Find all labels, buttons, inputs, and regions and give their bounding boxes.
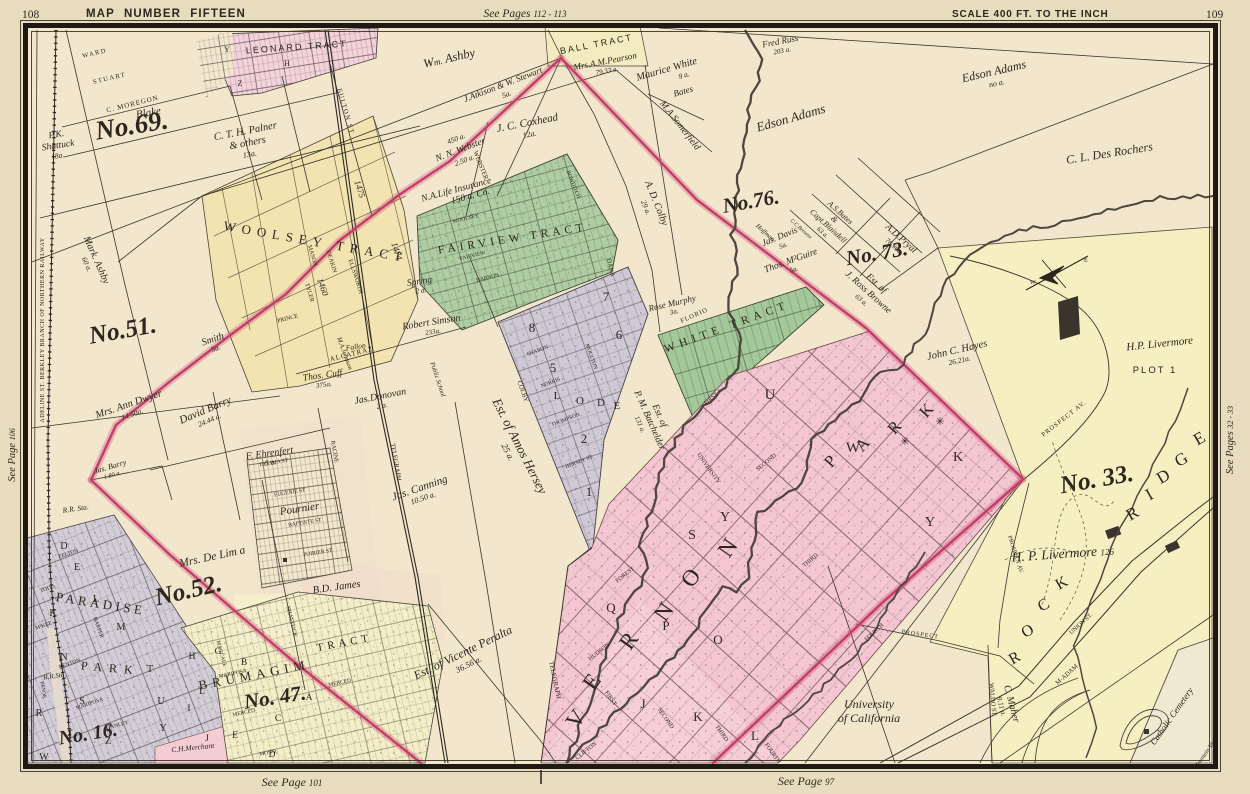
svg-text:R: R — [36, 708, 43, 719]
svg-text:U: U — [157, 696, 165, 707]
svg-text:L: L — [554, 390, 561, 402]
svg-text:Q: Q — [606, 600, 616, 615]
svg-text:1: 1 — [586, 484, 593, 499]
svg-text:E: E — [614, 400, 621, 412]
svg-text:MAP NUMBER FIFTEEN: MAP NUMBER FIFTEEN — [86, 8, 246, 20]
svg-text:6: 6 — [616, 327, 623, 342]
svg-text:E: E — [232, 731, 238, 741]
svg-text:See Pages 112 - 113: See Pages 112 - 113 — [484, 8, 567, 20]
svg-text:B: B — [241, 658, 247, 668]
svg-text:P: P — [662, 618, 669, 633]
svg-text:ADELINE ST. BERKLEY BRANCH: ADELINE ST. BERKLEY BRANCH OF NORTHERN R… — [40, 237, 46, 422]
svg-text:W: W — [1030, 280, 1036, 286]
svg-text:2: 2 — [581, 431, 588, 446]
svg-text:E: E — [74, 562, 80, 573]
svg-text:J: J — [640, 696, 645, 711]
svg-text:7: 7 — [603, 289, 610, 304]
svg-text:Y: Y — [159, 723, 166, 734]
svg-text:Z: Z — [238, 79, 243, 88]
svg-text:Y: Y — [720, 510, 730, 525]
svg-text:8: 8 — [529, 320, 536, 335]
svg-text:109: 109 — [1206, 9, 1224, 21]
svg-text:K: K — [693, 709, 703, 724]
svg-text:W: W — [39, 752, 49, 763]
svg-text:L: L — [93, 594, 99, 605]
svg-text:H: H — [284, 59, 290, 68]
svg-text:5: 5 — [550, 360, 557, 375]
svg-text:S: S — [688, 528, 696, 543]
svg-text:K: K — [953, 450, 963, 465]
svg-text:SCALE 400 FT. TO THE INCH: SCALE 400 FT. TO THE INCH — [952, 9, 1109, 20]
svg-text:L: L — [751, 728, 759, 743]
svg-text:Y: Y — [925, 515, 935, 530]
svg-text:✳: ✳ — [900, 436, 909, 448]
svg-text:Y: Y — [224, 45, 230, 54]
svg-text:T: T — [147, 664, 153, 675]
svg-text:✳: ✳ — [935, 416, 944, 428]
svg-text:See Page 101: See Page 101 — [262, 775, 323, 789]
svg-text:See Pages 32 - 33: See Pages 32 - 33 — [1225, 406, 1236, 474]
svg-text:I: I — [187, 704, 190, 714]
svg-text:M: M — [117, 622, 126, 633]
svg-text:D: D — [60, 541, 67, 552]
svg-text:See Page 97: See Page 97 — [778, 774, 835, 788]
svg-text:L: L — [199, 687, 205, 697]
svg-text:O: O — [713, 632, 722, 647]
svg-text:108: 108 — [22, 9, 40, 21]
svg-text:W: W — [846, 440, 861, 456]
svg-text:University: University — [844, 697, 895, 711]
svg-text:H: H — [189, 652, 196, 662]
svg-text:K: K — [49, 608, 57, 619]
svg-text:See Page 106: See Page 106 — [7, 428, 18, 481]
svg-text:U: U — [765, 387, 776, 403]
svg-text:2 a.: 2 a. — [415, 285, 428, 296]
svg-text:O: O — [576, 395, 584, 407]
svg-text:PLOT 1: PLOT 1 — [1133, 365, 1178, 376]
svg-text:D: D — [597, 397, 605, 409]
svg-text:C: C — [275, 714, 281, 724]
svg-text:E: E — [1084, 258, 1088, 264]
svg-text:A: A — [306, 693, 313, 703]
svg-text:of California: of California — [838, 711, 900, 725]
